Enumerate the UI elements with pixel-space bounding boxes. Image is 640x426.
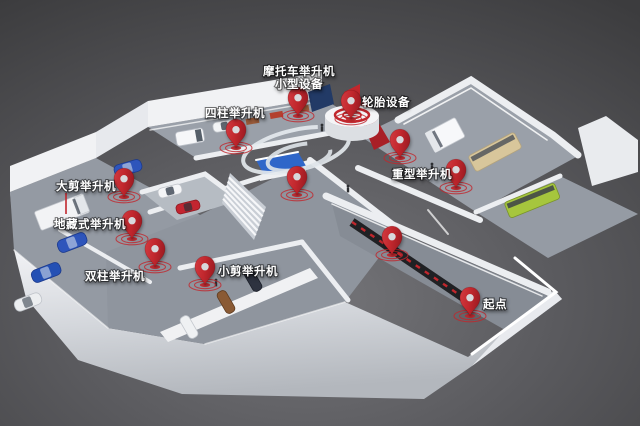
facility-map: 摩托车举升机小型设备轮胎设备四柱举升机大剪举升机地藏式举升机双柱举升机小剪举升机… bbox=[0, 0, 640, 426]
four-post-lift-label: 四柱举升机 bbox=[205, 106, 265, 120]
big-scissor-lift-label: 大剪举升机 bbox=[56, 179, 116, 193]
heavy-duty-lift-a-label: 重型举升机 bbox=[392, 167, 452, 181]
tire-equipment-label: 轮胎设备 bbox=[362, 95, 410, 109]
start-point-label: 起点 bbox=[482, 297, 507, 311]
small-scissor-lift-label: 小剪举升机 bbox=[217, 264, 278, 278]
isometric-scene: 摩托车举升机小型设备轮胎设备四柱举升机大剪举升机地藏式举升机双柱举升机小剪举升机… bbox=[0, 0, 640, 426]
in-ground-lift-label: 地藏式举升机 bbox=[54, 217, 126, 231]
two-post-lift-label: 双柱举升机 bbox=[84, 269, 145, 283]
